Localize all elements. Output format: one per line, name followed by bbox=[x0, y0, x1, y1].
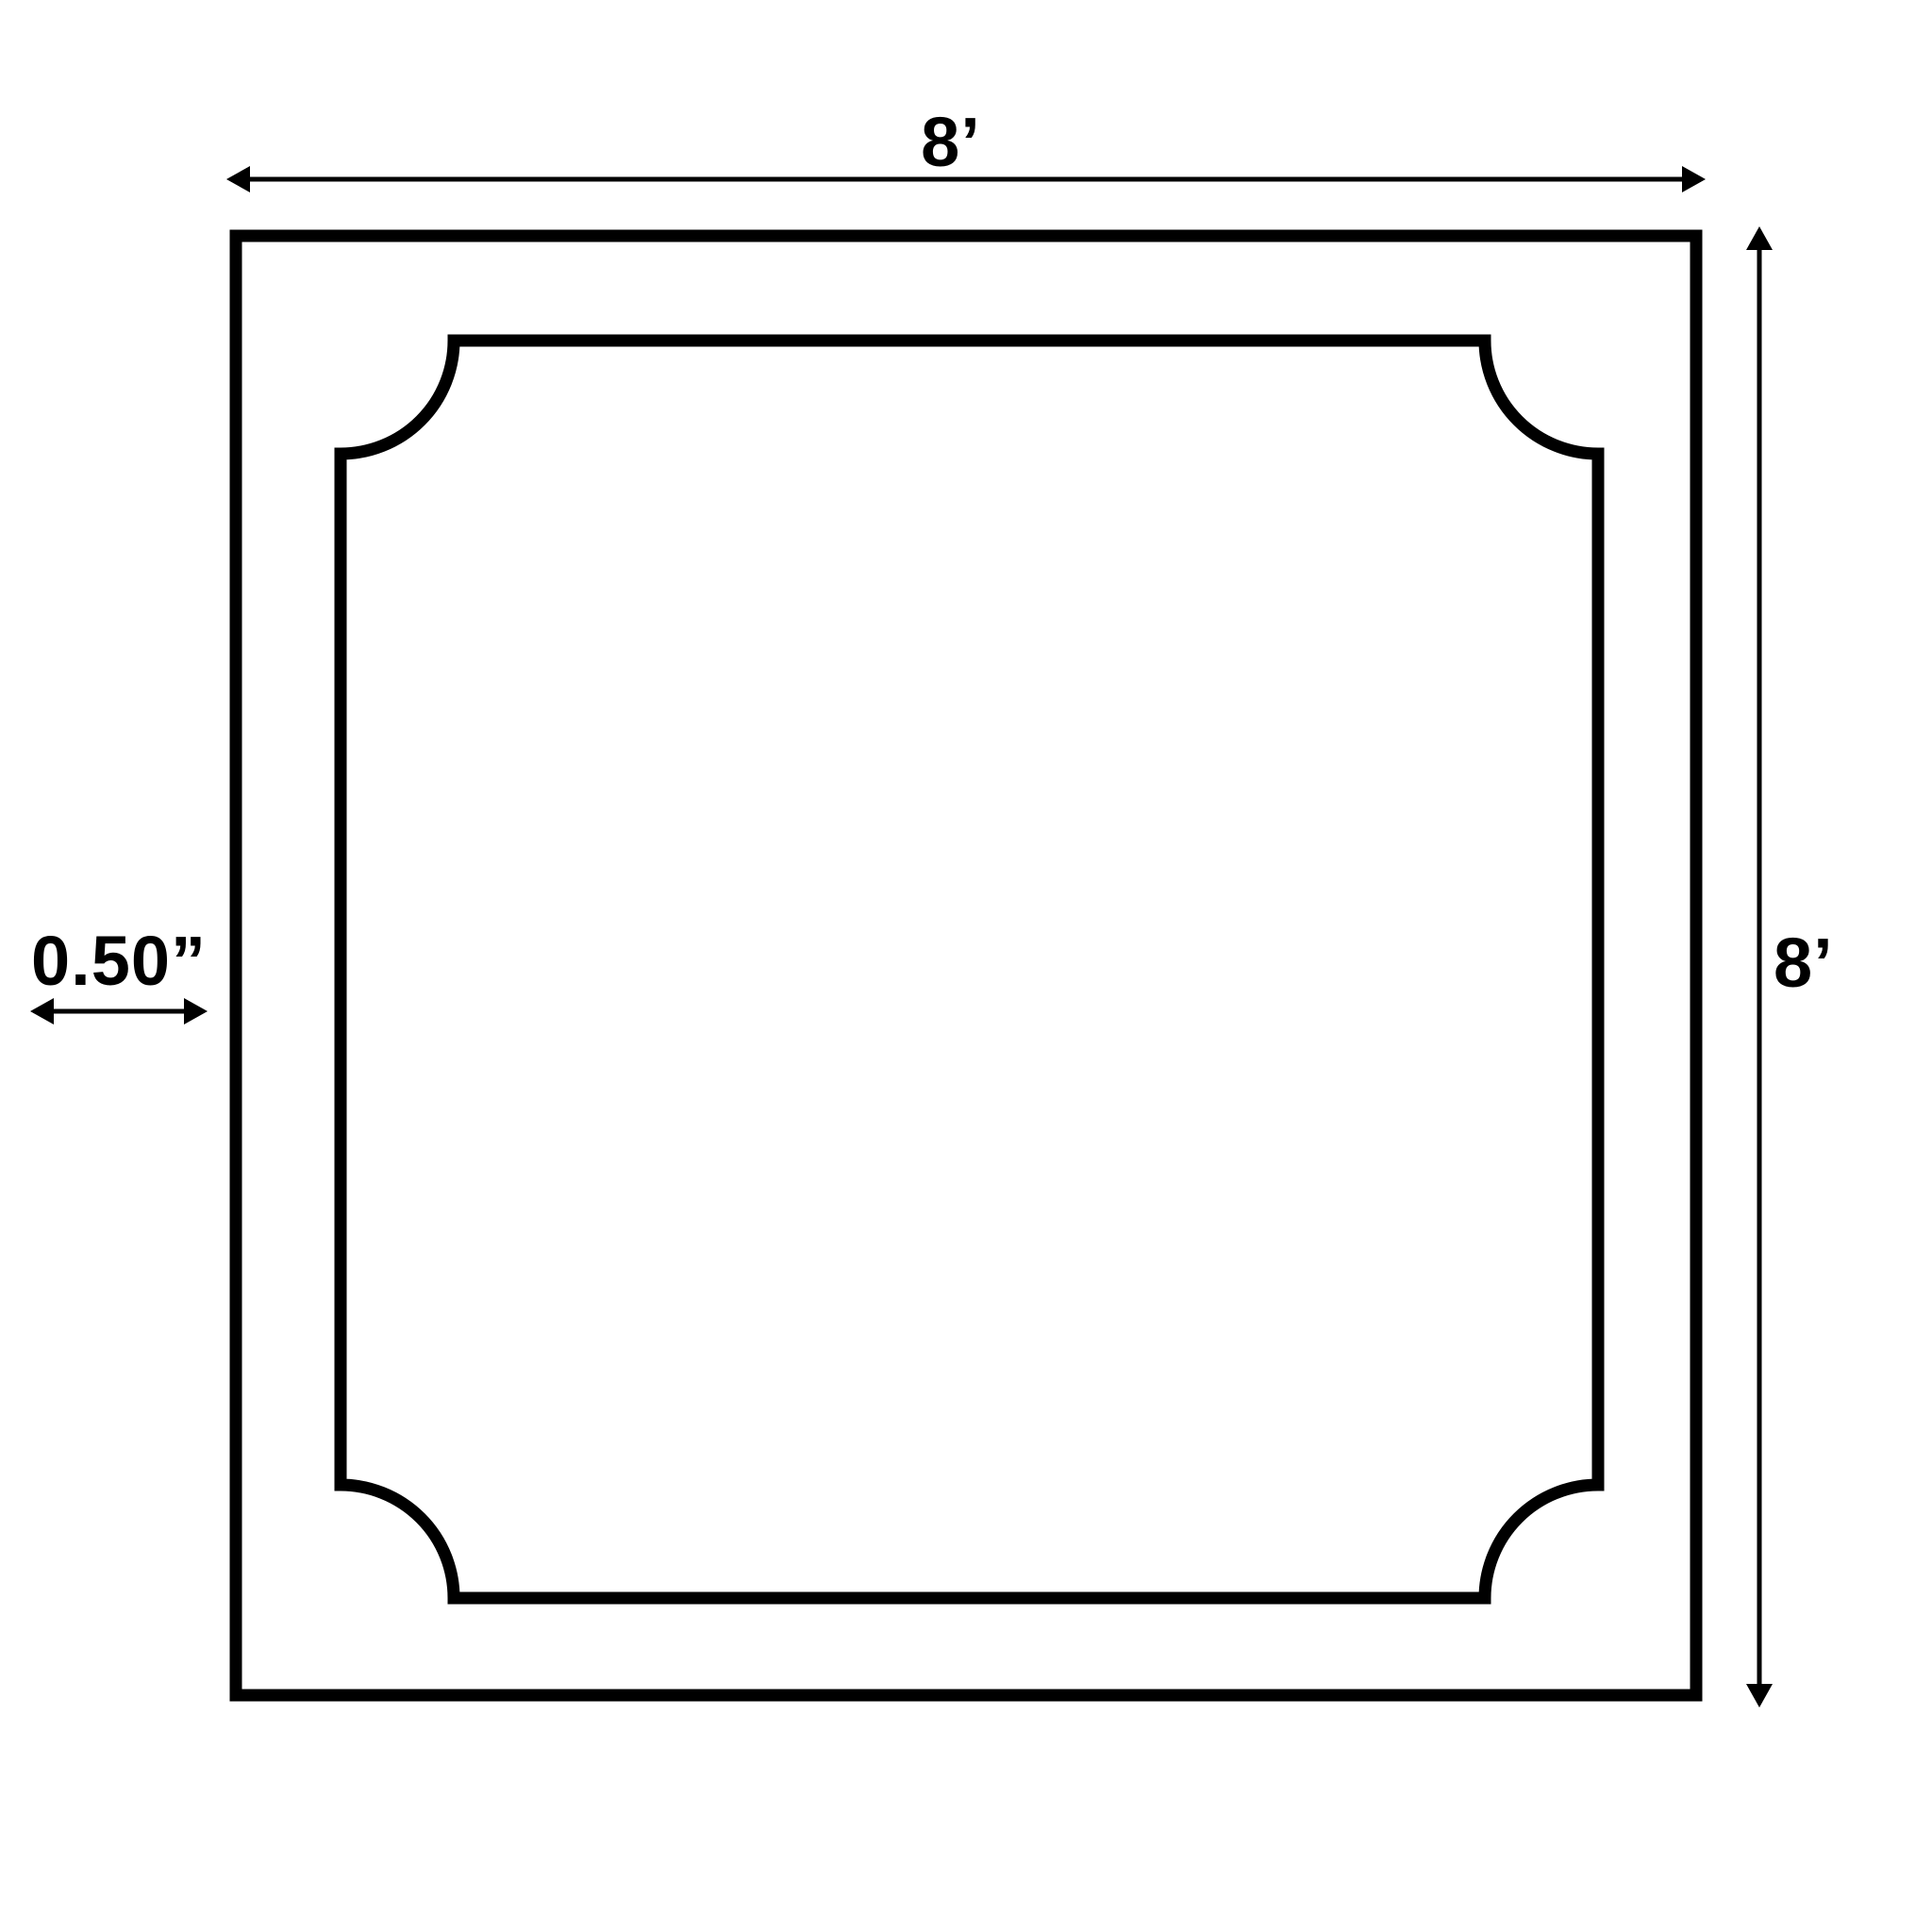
diagram-background bbox=[0, 0, 1932, 1932]
width-dimension-label: 8’ bbox=[921, 103, 981, 181]
diagram-canvas: 8’ 8’ 0.50” bbox=[0, 0, 1932, 1932]
moulding-offset-dimension: 0.50” bbox=[30, 922, 208, 1024]
moulding-offset-label: 0.50” bbox=[31, 922, 207, 1000]
panel-dimension-diagram: 8’ 8’ 0.50” bbox=[0, 0, 1932, 1932]
height-dimension-label: 8’ bbox=[1774, 924, 1834, 1002]
